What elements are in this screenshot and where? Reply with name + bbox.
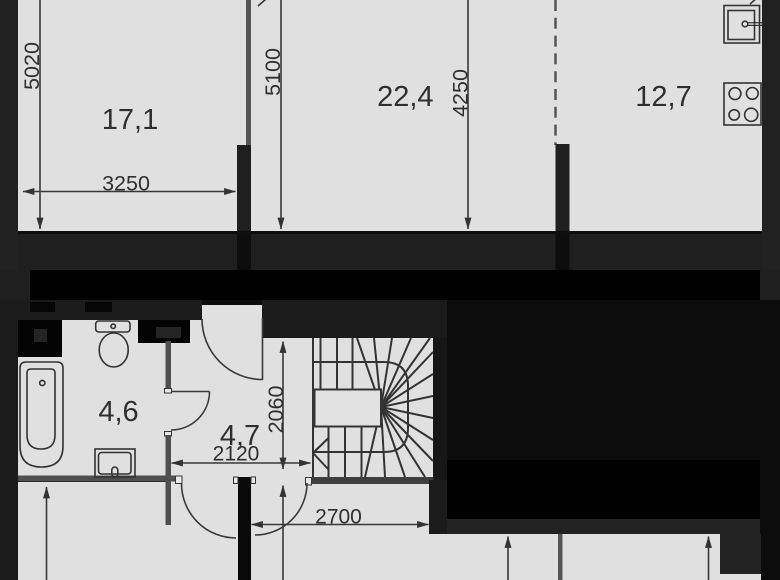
svg-text:12,7: 12,7: [635, 81, 691, 113]
svg-text:2060: 2060: [264, 386, 288, 434]
svg-text:17,1: 17,1: [102, 104, 158, 136]
svg-text:4,6: 4,6: [98, 396, 138, 428]
svg-text:22,4: 22,4: [377, 81, 433, 113]
svg-text:5020: 5020: [20, 42, 44, 90]
svg-text:4250: 4250: [449, 69, 473, 117]
svg-text:4,7: 4,7: [220, 420, 260, 452]
svg-text:3250: 3250: [102, 172, 150, 196]
svg-text:2700: 2700: [315, 506, 362, 529]
svg-text:5100: 5100: [261, 48, 285, 96]
